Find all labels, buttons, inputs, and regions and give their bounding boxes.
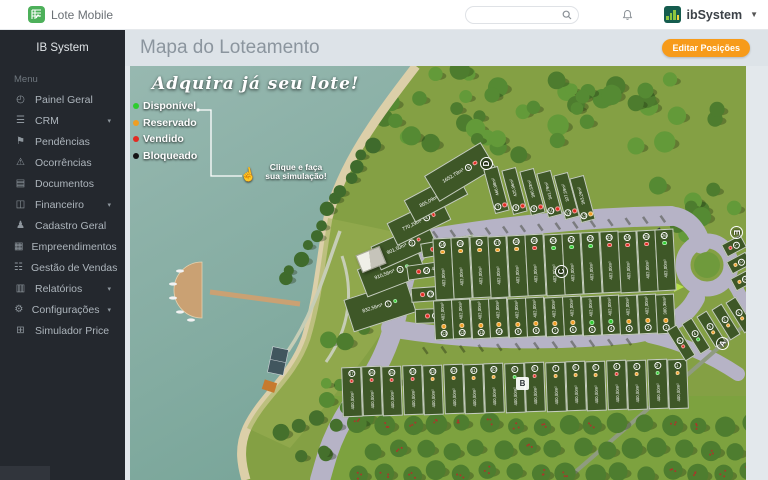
gear-icon: ⚙ (14, 304, 24, 315)
account-name: ibSystem (686, 8, 742, 22)
status-dot-reservado (458, 248, 463, 253)
lot-number: 18 (512, 238, 519, 245)
lot-area: 402,00m² (440, 303, 446, 321)
lot-number: 6 (464, 162, 474, 172)
lot-area-wrap: 402,00m² (470, 253, 490, 297)
sidebar-item-pend-ncias[interactable]: ⚑Pendências (0, 131, 125, 152)
lot-area-wrap: 402,00m² (562, 297, 581, 319)
lot-area: 466,98m² (490, 177, 500, 196)
lot-area: 400,00m² (553, 386, 559, 404)
sidebar-item-label: Documentos (35, 178, 94, 190)
lot-area: 400,00m² (614, 384, 620, 402)
cta-line2: sua simulação! (258, 172, 334, 181)
lot-area: 353,29m² (576, 186, 586, 205)
users-icon: ♟ (14, 220, 27, 231)
lot-area-wrap: 402,00m² (507, 252, 527, 296)
status-dot-reservado (675, 370, 680, 375)
chevron-down-icon: ▾ (107, 306, 111, 314)
simulation-cta[interactable]: Clique e faça sua simulação! (258, 163, 334, 182)
lot-number: 15 (456, 240, 463, 247)
lot-B-12[interactable]: 12400,00m² (443, 364, 465, 415)
lot-B-5[interactable]: 5400,00m² (585, 361, 607, 412)
lot-area: 402,00m² (532, 300, 538, 318)
status-dot-reservado (725, 322, 731, 328)
lot-area: 402,00m² (625, 261, 631, 279)
status-dot-vendido (349, 378, 354, 383)
lot-area: 402,00m² (607, 298, 613, 316)
status-dot-reservado (573, 372, 578, 377)
lot-area-wrap: 402,00m² (525, 251, 545, 295)
lot-B-3[interactable]: 3400,00m² (626, 360, 648, 411)
lot-number: 1 (674, 362, 681, 369)
lot-number: 23 (605, 234, 612, 241)
lot-C-5[interactable]: 5402,00m² (580, 296, 601, 337)
money-icon: ◫ (14, 199, 27, 210)
status-dot-reservado (451, 375, 456, 380)
lot-number: 11 (470, 367, 477, 374)
lot-area: 400,00m² (675, 383, 681, 401)
lot-area: 402,00m² (588, 299, 594, 317)
lot-C-6[interactable]: 6402,00m² (561, 296, 582, 337)
status-dot-disponivel (695, 336, 701, 342)
lot-area: 402,00m² (477, 302, 483, 320)
lot-area-wrap: 402,00m² (655, 246, 675, 290)
legend-dot (133, 136, 139, 142)
chevron-down-icon: ▼ (750, 10, 758, 19)
status-dot-vendido (425, 313, 430, 318)
sidebar-item-label: CRM (35, 115, 59, 127)
block-label-B: B (516, 377, 529, 390)
lot-B-15[interactable]: 15400,00m² (381, 366, 403, 417)
lot-number: 6 (569, 326, 576, 333)
crm-icon: ☰ (14, 115, 27, 126)
status-dot-reservado (645, 318, 650, 323)
lot-B-11[interactable]: 11400,00m² (463, 364, 485, 415)
sidebar-title: IB System (0, 30, 125, 66)
lot-number: 4 (613, 363, 620, 370)
lot-area-wrap: 400,00m² (608, 377, 627, 409)
status-dot-disponivel (551, 245, 556, 250)
status-dot-vendido (519, 203, 525, 209)
lot-area-wrap: 402,00m² (525, 298, 544, 320)
lot-area-wrap: 400,00m² (404, 382, 423, 414)
lot-area: 402,00m² (551, 300, 557, 318)
lots-layer: 832,56m²1910,56m²2901,50m²3770,29m²4865,… (130, 66, 746, 480)
sidebar-item-simulador-price[interactable]: ⊞Simulador Price (0, 320, 125, 341)
status-dot-reservado (430, 376, 435, 381)
lot-C-17[interactable]: 17402,00m² (487, 236, 509, 299)
lot-number: 22 (586, 235, 593, 242)
lot-number: 2 (644, 324, 651, 331)
lot-area: 402,00m² (644, 297, 650, 315)
lot-number: 10 (495, 328, 502, 335)
account-menu[interactable]: ibSystem ▼ (664, 6, 758, 23)
topbar: Lote Mobile ibSystem ▼ (0, 0, 768, 30)
sidebar-item-financeiro[interactable]: ◫Financeiro▾ (0, 194, 125, 215)
status-dot-vendido (472, 160, 478, 166)
lot-number: 12 (450, 367, 457, 374)
lot-B-17[interactable]: 17400,00m² (341, 367, 363, 418)
legend-label: Bloqueado (143, 150, 197, 162)
legend-item-reservado: Reservado (133, 117, 197, 129)
lot-area: 400,00m² (410, 389, 416, 407)
lot-number: 16 (368, 369, 375, 376)
lot-C-22[interactable]: 22402,00m² (580, 232, 602, 295)
lot-area-wrap: 402,00m² (618, 248, 638, 292)
sidebar-item-documentos[interactable]: ▤Documentos (0, 173, 125, 194)
lot-number: 2 (395, 264, 404, 273)
sidebar-item-label: Relatórios (35, 283, 82, 295)
status-dot-reservado (533, 321, 538, 326)
lot-area: 380,36m² (662, 297, 668, 315)
lot-area-wrap: 402,00m² (470, 300, 489, 322)
status-dot-reservado (593, 372, 598, 377)
lot-B-4[interactable]: 4400,00m² (606, 360, 628, 411)
legend-label: Reservado (143, 117, 197, 129)
sidebar-item-crm[interactable]: ☰CRM▾ (0, 110, 125, 131)
lot-number: 9 (514, 328, 521, 335)
lot-number: 9 (511, 366, 518, 373)
lot-area-wrap: 400,00m² (649, 376, 668, 408)
lot-area-wrap: 402,00m² (581, 297, 600, 319)
lot-number: 2 (737, 257, 746, 266)
app-logo-text: Lote Mobile (51, 8, 113, 22)
lot-number: 1 (732, 240, 741, 249)
document-icon: ▤ (14, 178, 27, 189)
lot-area: 400,00m² (369, 390, 375, 408)
lot-area: 402,00m² (495, 301, 501, 319)
lot-area: 402,00m² (532, 264, 538, 282)
page-header: Mapa do Loteamento Editar Posições (125, 30, 768, 66)
status-dot-reservado (495, 247, 500, 252)
status-dot-reservado (587, 211, 593, 217)
status-dot-reservado (441, 324, 446, 329)
lote-mobile-logo-icon (28, 6, 45, 23)
lot-number: 7 (552, 365, 559, 372)
sidebar-item-painel-geral[interactable]: ◴Painel Geral (0, 89, 125, 110)
lot-area: 402,00m² (514, 265, 520, 283)
lot-number: 2 (654, 362, 661, 369)
chevron-down-icon: ▾ (107, 285, 111, 293)
status-dot-reservado (514, 246, 519, 251)
status-legend: DisponívelReservadoVendidoBloqueado (133, 100, 197, 166)
lot-area-wrap: 402,00m² (600, 296, 619, 318)
lot-area: 402,00m² (514, 301, 520, 319)
loteamento-map[interactable]: 832,56m²1910,56m²2901,50m²3770,29m²4865,… (130, 66, 746, 480)
status-dot-vendido (501, 202, 507, 208)
sidebar-footer (0, 466, 50, 480)
lot-area: 390,53m² (526, 179, 536, 198)
legend-label: Disponível (143, 100, 196, 112)
lot-number: 3 (625, 325, 632, 332)
lot-area-wrap: 400,00m² (587, 378, 606, 410)
sales-list-icon: ☷ (14, 262, 23, 273)
lot-area-wrap: 402,00m² (544, 298, 563, 320)
lot-area-wrap: 400,00m² (424, 382, 443, 414)
legend-label: Vendido (143, 133, 184, 145)
lot-area-wrap: 400,00m² (383, 383, 402, 415)
sidebar-item-label: Ocorrências (35, 157, 92, 169)
lot-area: 1652,79m² (442, 167, 466, 184)
lot-area: 402,00m² (458, 302, 464, 320)
status-dot-vendido (416, 269, 421, 274)
lot-area-wrap: 402,00m² (451, 300, 470, 322)
lot-number: 7 (551, 327, 558, 334)
lot-area: 400,00m² (593, 385, 599, 403)
lot-area: 910,56m² (374, 268, 396, 281)
lot-area: 400,00m² (389, 390, 395, 408)
lot-number: 9 (529, 204, 538, 213)
lot-B-16[interactable]: 16400,00m² (361, 366, 383, 417)
notifications-bell-icon[interactable] (621, 8, 634, 22)
lot-area-wrap: 400,00m² (547, 379, 566, 411)
lot-number: 15 (388, 369, 395, 376)
status-dot-reservado (471, 375, 476, 380)
lot-number: 19 (530, 237, 537, 244)
lot-number: 8 (531, 365, 538, 372)
lot-area-wrap: 380,36m² (655, 295, 674, 317)
status-dot-disponivel (608, 319, 613, 324)
sidebar-item-label: Empreendimentos (31, 241, 116, 253)
lot-area-wrap: 402,00m² (581, 249, 601, 293)
status-dot-disponivel (655, 370, 660, 375)
lot-area-wrap: 402,00m² (637, 295, 656, 317)
lot-number: 16 (475, 239, 482, 246)
lot-number: 17 (493, 239, 500, 246)
lot-number: 4 (607, 325, 614, 332)
lot-number: 5 (588, 326, 595, 333)
search-box[interactable] (465, 6, 579, 24)
status-dot-vendido (644, 241, 649, 246)
lot-number: 20 (549, 237, 556, 244)
lot-area: 402,00m² (569, 263, 575, 281)
lot-number: 24 (623, 234, 630, 241)
lot-C-24[interactable]: 24402,00m² (617, 231, 639, 294)
status-dot-reservado (515, 322, 520, 327)
lot-area: 400,00m² (471, 388, 477, 406)
lot-area-wrap: 402,00m² (488, 253, 508, 297)
lot-area: 402,00m² (495, 266, 501, 284)
status-dot-vendido (420, 292, 425, 297)
status-dot-reservado (710, 329, 716, 335)
lot-B-6[interactable]: 6400,00m² (565, 361, 587, 412)
lot-area-wrap: 402,00m² (637, 247, 657, 291)
legend-item-bloqueado: Bloqueado (133, 150, 197, 162)
lot-number: 10 (490, 366, 497, 373)
sidebar-menu: ◴Painel Geral☰CRM▾⚑Pendências⚠Ocorrência… (0, 89, 125, 341)
lot-number: 17 (348, 370, 355, 377)
lot-B-10[interactable]: 10400,00m² (483, 363, 505, 414)
lot-C-10[interactable]: 10402,00m² (487, 298, 508, 339)
sidebar-item-label: Painel Geral (35, 94, 93, 106)
legend-dot (133, 153, 139, 159)
status-dot-vendido (532, 245, 537, 250)
lot-number: 7 (493, 202, 502, 211)
lot-area-wrap: 402,00m² (488, 299, 507, 321)
block-label-D: D (480, 157, 493, 170)
sidebar-item-label: Cadastro Geral (35, 220, 106, 232)
lot-area-wrap: 402,00m² (451, 254, 471, 298)
lot-C-21[interactable]: 21402,00m² (561, 233, 583, 296)
app-logo[interactable]: Lote Mobile (28, 6, 113, 23)
lot-number: 13 (440, 330, 447, 337)
lot-number: 8 (532, 327, 539, 334)
lot-area: 400,00m² (634, 384, 640, 402)
lot-number: 13 (426, 290, 433, 297)
lot-area-wrap: 402,00m² (600, 248, 620, 292)
search-icon[interactable] (562, 10, 572, 20)
lot-area: 402,00m² (440, 268, 446, 286)
sidebar-item-label: Simulador Price (35, 325, 109, 337)
status-dot-disponivel (569, 244, 574, 249)
lot-area: 402,00m² (644, 260, 650, 278)
search-input[interactable] (472, 9, 562, 20)
status-dot-vendido (532, 373, 537, 378)
lot-area: 402,00m² (588, 262, 594, 280)
status-dot-vendido (614, 371, 619, 376)
lot-number: 12 (579, 211, 588, 220)
chevron-down-icon: ▾ (107, 117, 111, 125)
lot-area: 400,00m² (430, 389, 436, 407)
lot-area: 402,00m² (607, 261, 613, 279)
block-label-E: E (730, 226, 743, 239)
lot-number: 25 (642, 233, 649, 240)
status-dot-disponivel (662, 240, 667, 245)
click-hand-icon: ☝ (239, 165, 258, 184)
status-dot-reservado (739, 315, 745, 321)
content-area: Mapa do Loteamento Editar Posições (125, 30, 768, 480)
lot-number: 21 (567, 236, 574, 243)
page-title: Mapa do Loteamento (140, 37, 320, 59)
lot-B-2[interactable]: 2400,00m² (647, 359, 669, 410)
lot-number: 12 (458, 329, 465, 336)
status-dot-vendido (625, 242, 630, 247)
status-dot-reservado (478, 323, 483, 328)
status-dot-disponivel (392, 298, 398, 304)
map-banner-text: Adquira já seu lote! (152, 74, 359, 94)
legend-dot (133, 103, 139, 109)
sidebar-item-gest-o-de-vendas[interactable]: ☷Gestão de Vendas (0, 257, 125, 278)
lot-number: 13 (429, 368, 436, 375)
lot-area-wrap: 402,00m² (618, 296, 637, 318)
lot-area-wrap: 400,00m² (445, 381, 464, 413)
lot-number: 3 (633, 363, 640, 370)
edit-positions-button[interactable]: Editar Posições (662, 39, 750, 57)
lot-area: 402,00m² (477, 266, 483, 284)
report-icon: ▥ (14, 283, 27, 294)
lot-area: 341,79m² (543, 181, 553, 200)
legend-item-disponivel: Disponível (133, 100, 197, 112)
status-dot-reservado (459, 323, 464, 328)
calculator-icon: ⊞ (14, 325, 27, 336)
status-dot-reservado (477, 247, 482, 252)
sidebar-item-label: Configurações (32, 304, 100, 316)
lot-area-wrap: 400,00m² (567, 378, 586, 410)
lot-number: 14 (438, 241, 445, 248)
lot-area: 400,00m² (532, 386, 538, 404)
sidebar-item-label: Pendências (35, 136, 90, 148)
sidebar-item-label: Gestão de Vendas (31, 262, 117, 274)
lot-number: 11 (477, 329, 484, 336)
warning-icon: ⚠ (14, 157, 27, 168)
lot-area: 400,00m² (491, 387, 497, 405)
status-dot-reservado (626, 319, 631, 324)
lot-number: 10 (546, 206, 555, 215)
lot-area-wrap: 400,00m² (465, 381, 484, 413)
lot-area-wrap: 400,00m² (669, 376, 688, 408)
sidebar: IB System Menu ◴Painel Geral☰CRM▾⚑Pendên… (0, 30, 125, 480)
lot-area: 402,00m² (625, 298, 631, 316)
lot-area: 400,00m² (655, 383, 661, 401)
status-dot-vendido (410, 376, 415, 381)
lot-area: 402,00m² (569, 299, 575, 317)
sidebar-item-label: Financeiro (35, 199, 84, 211)
lot-area-wrap: 400,00m² (343, 384, 362, 416)
status-dot-disponivel (589, 320, 594, 325)
lot-C-12[interactable]: 12402,00m² (450, 299, 471, 340)
status-dot-reservado (440, 249, 445, 254)
lot-number: 14 (422, 266, 430, 274)
sidebar-item-relat-rios[interactable]: ▥Relatórios▾ (0, 278, 125, 299)
lot-C-19[interactable]: 19402,00m² (524, 234, 546, 297)
lot-area-wrap: 400,00m² (628, 377, 647, 409)
lot-C-8[interactable]: 8402,00m² (524, 297, 545, 338)
lot-area: 400,00m² (349, 391, 355, 409)
lot-area: 400,00m² (573, 385, 579, 403)
status-dot-vendido (680, 343, 686, 349)
sidebar-item-configura-es[interactable]: ⚙Configurações▾ (0, 299, 125, 320)
lot-area-wrap: 402,00m² (433, 255, 453, 299)
status-dot-vendido (369, 377, 374, 382)
lot-C-26[interactable]: 26402,00m² (654, 229, 676, 292)
lot-number: 11 (563, 208, 572, 217)
lot-C-3[interactable]: 3402,00m² (617, 295, 638, 336)
dashboard-icon: ◴ (14, 94, 27, 105)
lot-number: 14 (409, 368, 416, 375)
building-icon: ▦ (14, 241, 23, 252)
status-dot-vendido (389, 377, 394, 382)
lot-area: 425,96m² (508, 178, 518, 197)
lot-B-7[interactable]: 7400,00m² (545, 362, 567, 413)
flag-file-icon: ⚑ (14, 136, 27, 147)
chevron-down-icon: ▾ (107, 201, 111, 209)
lot-number: 26 (660, 232, 667, 239)
lot-number: 1 (383, 299, 392, 308)
sidebar-item-cadastro-geral[interactable]: ♟Cadastro Geral (0, 215, 125, 236)
lot-area: 402,00m² (662, 259, 668, 277)
status-dot-reservado (491, 374, 496, 379)
lot-area: 832,56m² (362, 302, 384, 314)
lot-B-1[interactable]: 1400,00m² (667, 359, 689, 410)
lot-C-15[interactable]: 15402,00m² (450, 237, 472, 300)
status-dot-vendido (607, 242, 612, 247)
lot-area: 400,00m² (451, 388, 457, 406)
lot-area: 327,59m² (560, 183, 570, 202)
sidebar-item-ocorr-ncias[interactable]: ⚠Ocorrências (0, 152, 125, 173)
sidebar-item-empreendimentos[interactable]: ▦Empreendimentos (0, 236, 125, 257)
status-dot-vendido (416, 236, 422, 242)
lot-area-wrap: 400,00m² (363, 383, 382, 415)
status-dot-reservado (552, 321, 557, 326)
lot-number: 6 (572, 364, 579, 371)
lot-area-wrap: 402,00m² (433, 301, 452, 323)
status-dot-disponivel (588, 243, 593, 248)
lot-area: 402,00m² (458, 267, 464, 285)
lot-B-13[interactable]: 13400,00m² (422, 365, 444, 416)
status-dot-reservado (553, 373, 558, 378)
lot-B-14[interactable]: 14400,00m² (402, 365, 424, 416)
menu-section-label: Menu (0, 66, 125, 89)
